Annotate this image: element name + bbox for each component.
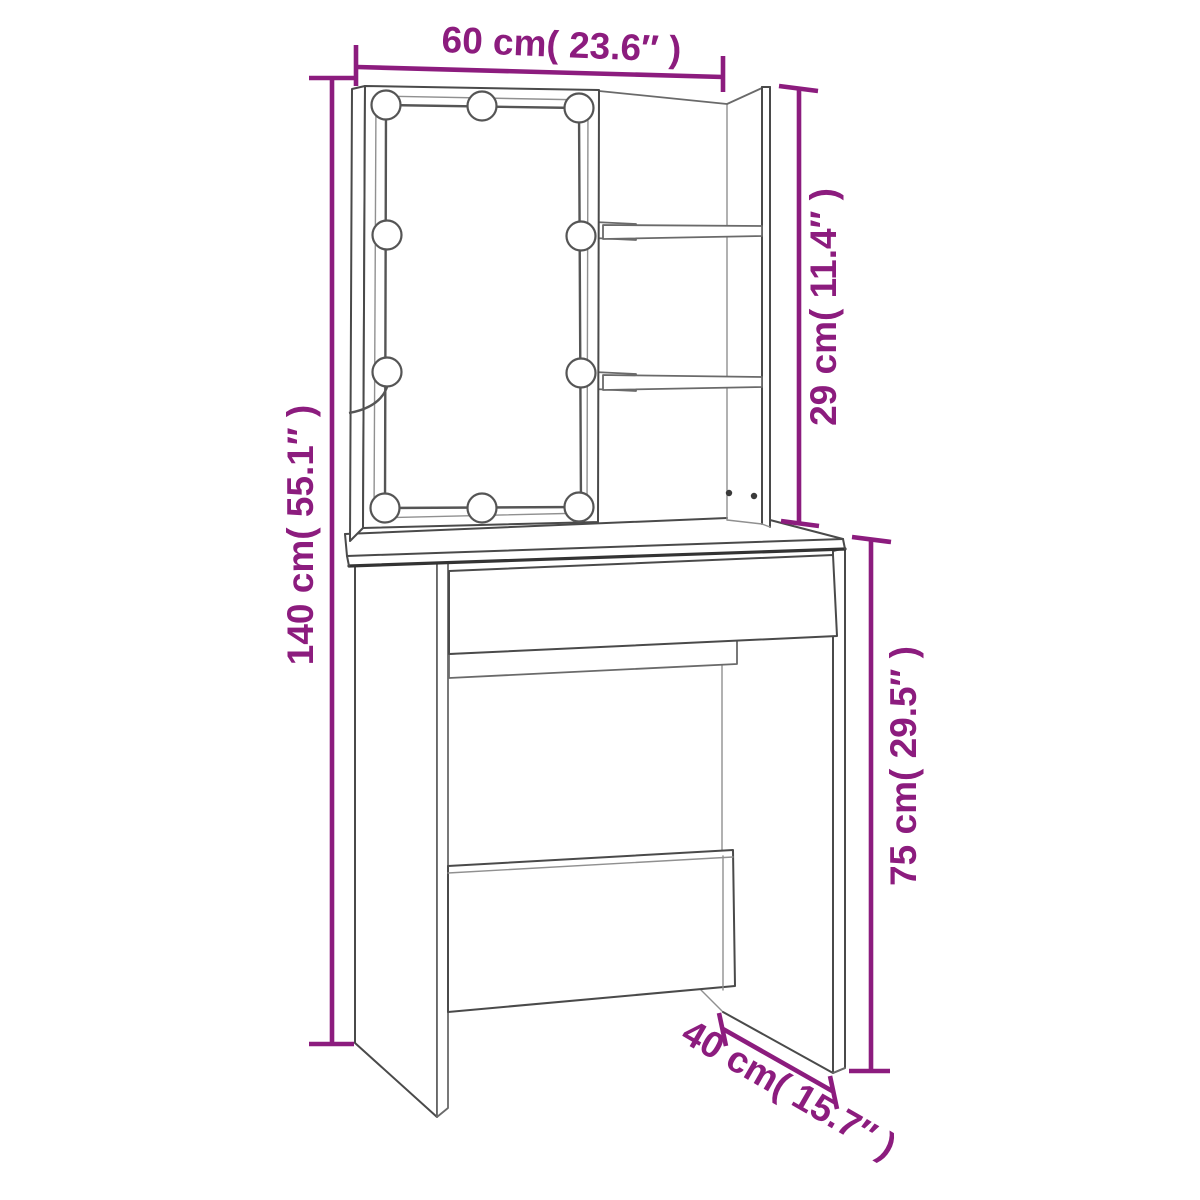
led-bulb <box>372 91 401 120</box>
led-bulb <box>373 221 402 250</box>
screw-mark <box>751 493 757 499</box>
drawer-front <box>449 555 837 654</box>
desk-left-side-panel <box>355 543 448 1117</box>
dimension-overall-height: 140 cm( 55.1″ ) <box>280 78 355 1044</box>
led-bulb <box>373 358 402 387</box>
screw-mark <box>726 490 732 496</box>
led-bulb <box>468 494 497 523</box>
dimension-table-height: 75 cm( 29.5″ ) <box>849 537 924 1071</box>
dimension-upper-cabinet-height-label: 29 cm( 11.4″ ) <box>803 188 844 426</box>
modesty-panel <box>448 850 735 1012</box>
led-bulb <box>565 493 594 522</box>
dimension-overall-width-label: 60 cm( 23.6″ ) <box>441 19 682 70</box>
shelf-upper <box>594 222 762 240</box>
dimension-diagram: 60 cm( 23.6″ ) 140 cm( 55.1″ ) 29 cm( 11… <box>0 0 1200 1200</box>
shelf-lower <box>594 372 762 391</box>
diagram-canvas: 60 cm( 23.6″ ) 140 cm( 55.1″ ) 29 cm( 11… <box>0 0 1200 1200</box>
led-bulb <box>567 222 596 251</box>
led-bulb <box>468 92 497 121</box>
furniture-drawing <box>345 86 845 1117</box>
dimension-overall-height-label: 140 cm( 55.1″ ) <box>280 405 321 665</box>
dimension-upper-cabinet-height: 29 cm( 11.4″ ) <box>779 86 844 526</box>
led-mirror <box>349 86 599 541</box>
dimension-table-height-label: 75 cm( 29.5″ ) <box>883 646 924 886</box>
led-bulb <box>567 359 596 388</box>
upper-cabinet-frame <box>599 87 770 527</box>
dimension-overall-width: 60 cm( 23.6″ ) <box>356 19 723 92</box>
led-bulb <box>371 494 400 523</box>
led-bulb <box>565 94 594 123</box>
